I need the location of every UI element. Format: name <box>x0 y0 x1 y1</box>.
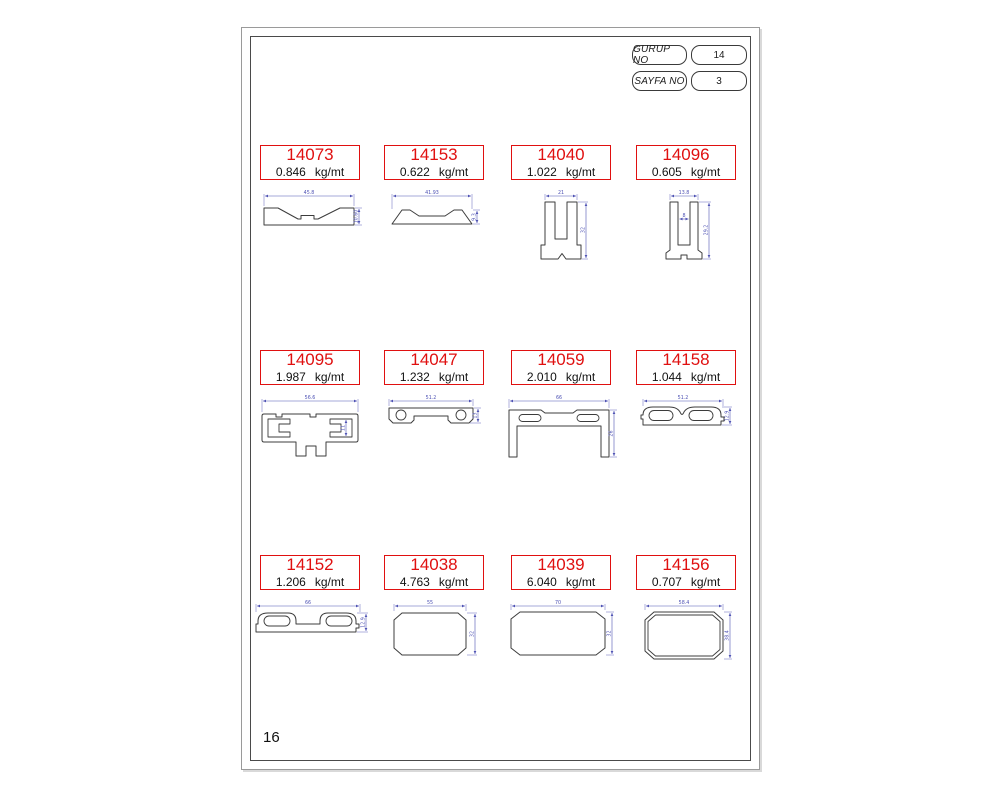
profile-weight: 6.040kg/mt <box>527 575 595 589</box>
page-no-label-box: SAYFA NO <box>632 71 687 91</box>
profile-title-box: 14039 6.040kg/mt <box>511 555 611 590</box>
profile-cell-14096: 14096 0.605kg/mt 13.8 8 29.2 <box>622 145 750 267</box>
profile-title-box: 14059 2.010kg/mt <box>511 350 611 385</box>
dim-height: 12.9 <box>361 617 367 628</box>
unit-label: kg/mt <box>315 575 344 589</box>
profile-title-box: 14047 1.232kg/mt <box>384 350 484 385</box>
unit-label: kg/mt <box>439 575 468 589</box>
profile-drawing-14152: 66 12.9 <box>250 599 370 641</box>
page-number: 16 <box>263 729 280 746</box>
unit-label: kg/mt <box>315 370 344 384</box>
profile-drawing-14158: 51.2 12.9 <box>637 394 735 436</box>
profile-weight: 1.232kg/mt <box>400 370 468 384</box>
profile-drawing-14038: 55 32 <box>386 599 482 661</box>
page-no-value-box: 3 <box>691 71 747 91</box>
profile-title-box: 14153 0.622kg/mt <box>384 145 484 180</box>
profile-title-box: 14038 4.763kg/mt <box>384 555 484 590</box>
dim-height: 26 <box>609 430 615 436</box>
unit-label: kg/mt <box>691 575 720 589</box>
profile-cell-14039: 14039 6.040kg/mt 70 32 <box>497 555 625 661</box>
profile-drawing-14153: 41.93 9.3 <box>384 189 484 233</box>
profile-drawing-14096: 13.8 8 29.2 <box>656 189 716 267</box>
dim-width: 13.8 <box>679 190 690 196</box>
profile-code: 14047 <box>410 351 457 369</box>
dim-inner: 11 <box>341 425 347 431</box>
profile-drawing-14047: 51.2 13 <box>383 394 485 432</box>
profile-drawing-14040: 21 32 <box>529 189 593 267</box>
catalog-page: GURUP NO 14 SAYFA NO 3 16 14073 0.846kg/… <box>0 0 1000 800</box>
profile-weight: 1.022kg/mt <box>527 165 595 179</box>
profile-weight: 1.044kg/mt <box>652 370 720 384</box>
profile-code: 14040 <box>537 146 584 164</box>
profile-weight: 0.622kg/mt <box>400 165 468 179</box>
page-no-label: SAYFA NO <box>634 76 684 87</box>
profile-cell-14038: 14038 4.763kg/mt 55 32 <box>370 555 498 661</box>
profile-weight: 0.846kg/mt <box>276 165 344 179</box>
profile-title-box: 14152 1.206kg/mt <box>260 555 360 590</box>
profile-weight: 2.010kg/mt <box>527 370 595 384</box>
profile-weight: 1.987kg/mt <box>276 370 344 384</box>
group-no-value: 14 <box>713 50 724 61</box>
dim-height: 9.3 <box>472 213 478 221</box>
dim-width: 66 <box>305 600 311 606</box>
dim-width: 66 <box>556 395 562 401</box>
dim-height: 32 <box>581 227 587 233</box>
profile-weight: 0.605kg/mt <box>652 165 720 179</box>
profile-drawing-14073: 45.8 10.60 <box>254 189 366 239</box>
dim-width: 51.2 <box>678 395 689 401</box>
dim-width: 21 <box>558 190 564 196</box>
profile-cell-14158: 14158 1.044kg/mt 51.2 12.9 <box>622 350 750 436</box>
profile-code: 14038 <box>410 556 457 574</box>
dim-width: 51.2 <box>426 395 437 401</box>
dim-width: 55 <box>427 600 433 606</box>
profile-code: 14156 <box>662 556 709 574</box>
profile-drawing-14059: 66 26 <box>503 394 619 464</box>
profile-cell-14047: 14047 1.232kg/mt 51.2 13 <box>370 350 498 432</box>
profile-drawing-14095: 56.6 11 <box>254 394 366 462</box>
dim-height: 10.60 <box>354 210 360 224</box>
group-no-label: GURUP NO <box>633 44 686 66</box>
profile-weight: 1.206kg/mt <box>276 575 344 589</box>
profile-code: 14039 <box>537 556 584 574</box>
profile-code: 14073 <box>286 146 333 164</box>
profile-weight: 4.763kg/mt <box>400 575 468 589</box>
profile-weight: 0.707kg/mt <box>652 575 720 589</box>
page-no-value: 3 <box>716 76 722 87</box>
profile-cell-14059: 14059 2.010kg/mt 66 26 <box>497 350 625 464</box>
group-no-label-box: GURUP NO <box>632 45 687 65</box>
unit-label: kg/mt <box>691 370 720 384</box>
dim-width: 58.4 <box>679 600 690 606</box>
unit-label: kg/mt <box>566 370 595 384</box>
profile-title-box: 14158 1.044kg/mt <box>636 350 736 385</box>
profile-title-box: 14096 0.605kg/mt <box>636 145 736 180</box>
unit-label: kg/mt <box>691 165 720 179</box>
profile-title-box: 14073 0.846kg/mt <box>260 145 360 180</box>
dim-width: 56.6 <box>305 395 316 401</box>
profile-title-box: 14095 1.987kg/mt <box>260 350 360 385</box>
unit-label: kg/mt <box>439 370 468 384</box>
profile-title-box: 14156 0.707kg/mt <box>636 555 736 590</box>
profile-cell-14152: 14152 1.206kg/mt 66 12.9 <box>246 555 374 641</box>
profile-title-box: 14040 1.022kg/mt <box>511 145 611 180</box>
profile-code: 14096 <box>662 146 709 164</box>
profile-code: 14152 <box>286 556 333 574</box>
dim-height: 12.9 <box>725 411 731 422</box>
dim-inner: 8 <box>682 213 685 219</box>
profile-drawing-14039: 70 32 <box>505 599 617 661</box>
unit-label: kg/mt <box>439 165 468 179</box>
profile-drawing-14156: 58.4 38.4 <box>637 599 735 667</box>
dim-height: 32 <box>470 631 476 637</box>
dim-height: 32 <box>607 630 613 636</box>
profile-cell-14095: 14095 1.987kg/mt 56.6 11 <box>246 350 374 462</box>
dim-width: 45.8 <box>304 190 315 196</box>
profile-cell-14073: 14073 0.846kg/mt 45.8 10.60 <box>246 145 374 239</box>
profile-code: 14095 <box>286 351 333 369</box>
profile-code: 14059 <box>537 351 584 369</box>
profile-code: 14158 <box>662 351 709 369</box>
unit-label: kg/mt <box>315 165 344 179</box>
group-no-value-box: 14 <box>691 45 747 65</box>
dim-height: 38.4 <box>725 630 731 641</box>
dim-height: 29.2 <box>704 225 710 236</box>
dim-width: 41.93 <box>425 190 439 196</box>
profile-cell-14153: 14153 0.622kg/mt 41.93 9.3 <box>370 145 498 233</box>
dim-width: 70 <box>555 600 561 606</box>
profile-cell-14040: 14040 1.022kg/mt 21 32 <box>497 145 625 267</box>
dim-height: 13 <box>473 412 479 418</box>
profile-code: 14153 <box>410 146 457 164</box>
profile-cell-14156: 14156 0.707kg/mt 58.4 38.4 <box>622 555 750 667</box>
unit-label: kg/mt <box>566 165 595 179</box>
unit-label: kg/mt <box>566 575 595 589</box>
